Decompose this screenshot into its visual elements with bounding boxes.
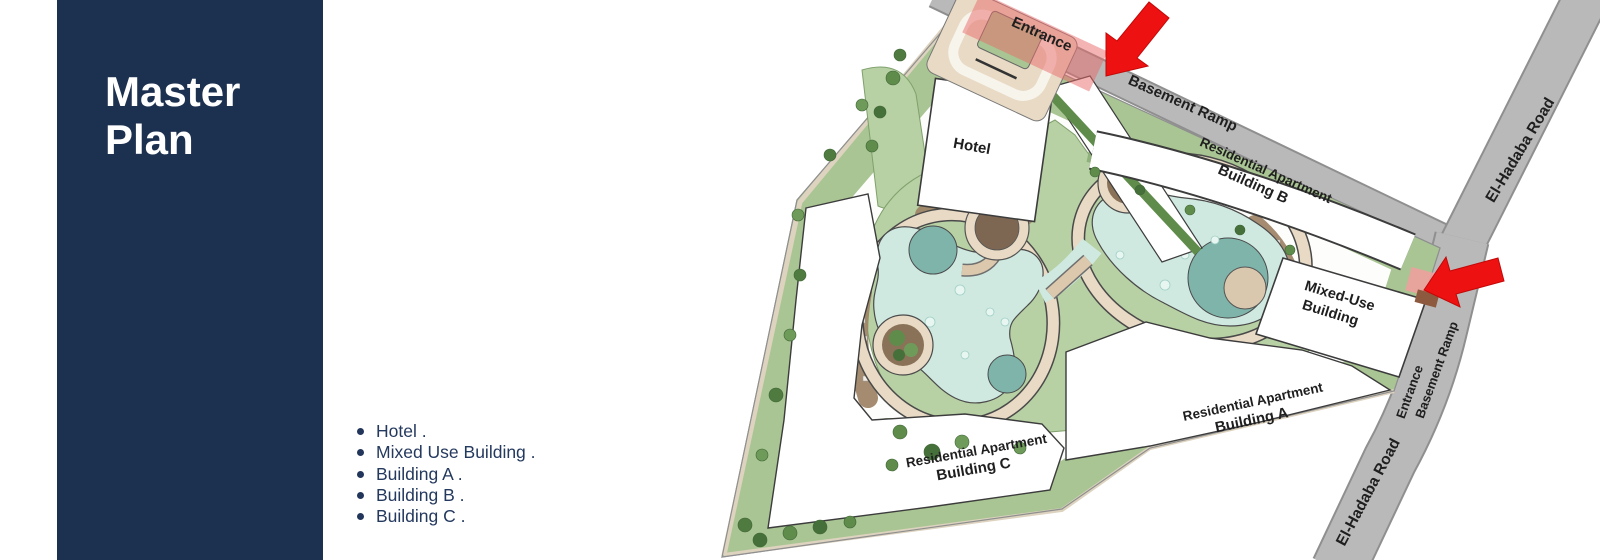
entrance-arrow-top <box>1106 2 1169 76</box>
planter-2 <box>873 315 933 375</box>
list-item: Building C . <box>357 506 536 527</box>
legend-list: Hotel . Mixed Use Building . Building A … <box>357 421 536 527</box>
bullet-icon <box>357 428 364 435</box>
legend-item-label: Mixed Use Building . <box>376 442 536 463</box>
list-item: Hotel . <box>357 421 536 442</box>
page-title: Master Plan <box>105 68 240 164</box>
sidebar: Master Plan <box>57 0 323 560</box>
bullet-icon <box>357 449 364 456</box>
list-item: Mixed Use Building . <box>357 442 536 463</box>
bullet-icon <box>357 513 364 520</box>
legend-item-label: Hotel . <box>376 421 427 442</box>
legend-item-label: Building C . <box>376 506 466 527</box>
page-title-line1: Master <box>105 68 240 116</box>
legend-item-label: Building A . <box>376 464 463 485</box>
list-item: Building A . <box>357 464 536 485</box>
bullet-icon <box>357 492 364 499</box>
legend-item-label: Building B . <box>376 485 465 506</box>
master-plan-slide: Entrance Basement Ramp El-Hadaba Road Ho… <box>0 0 1600 560</box>
page-title-line2: Plan <box>105 116 240 164</box>
list-item: Building B . <box>357 485 536 506</box>
bullet-icon <box>357 471 364 478</box>
